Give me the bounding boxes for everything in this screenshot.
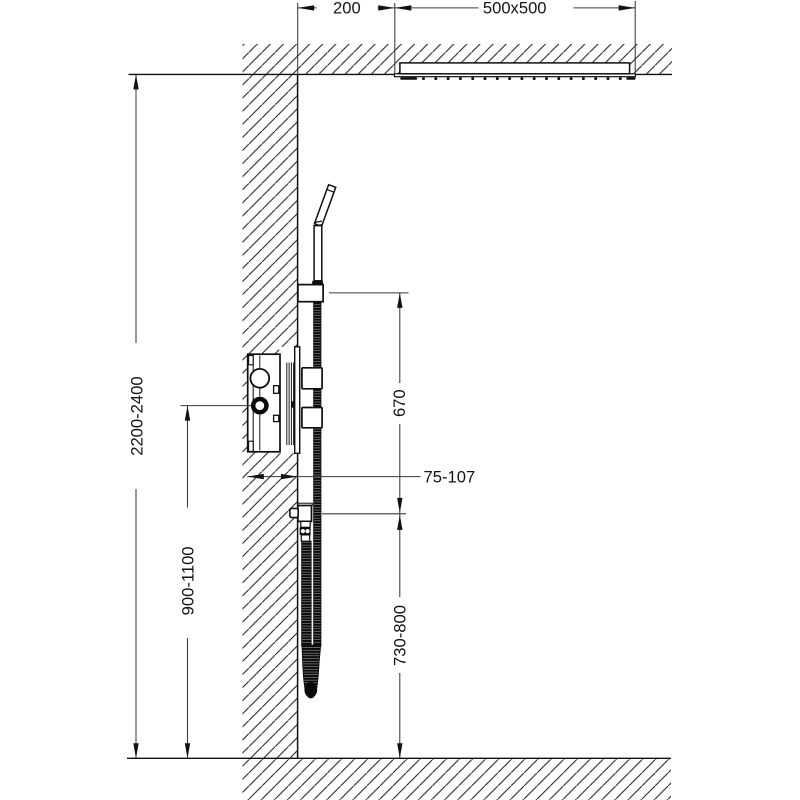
- svg-text:670: 670: [390, 389, 409, 417]
- svg-text:75-107: 75-107: [424, 467, 476, 486]
- svg-text:200: 200: [333, 0, 361, 18]
- svg-text:2200-2400: 2200-2400: [127, 376, 146, 455]
- svg-text:500x500: 500x500: [483, 0, 547, 18]
- svg-text:730-800: 730-800: [391, 605, 410, 666]
- svg-text:900-1100: 900-1100: [178, 546, 197, 615]
